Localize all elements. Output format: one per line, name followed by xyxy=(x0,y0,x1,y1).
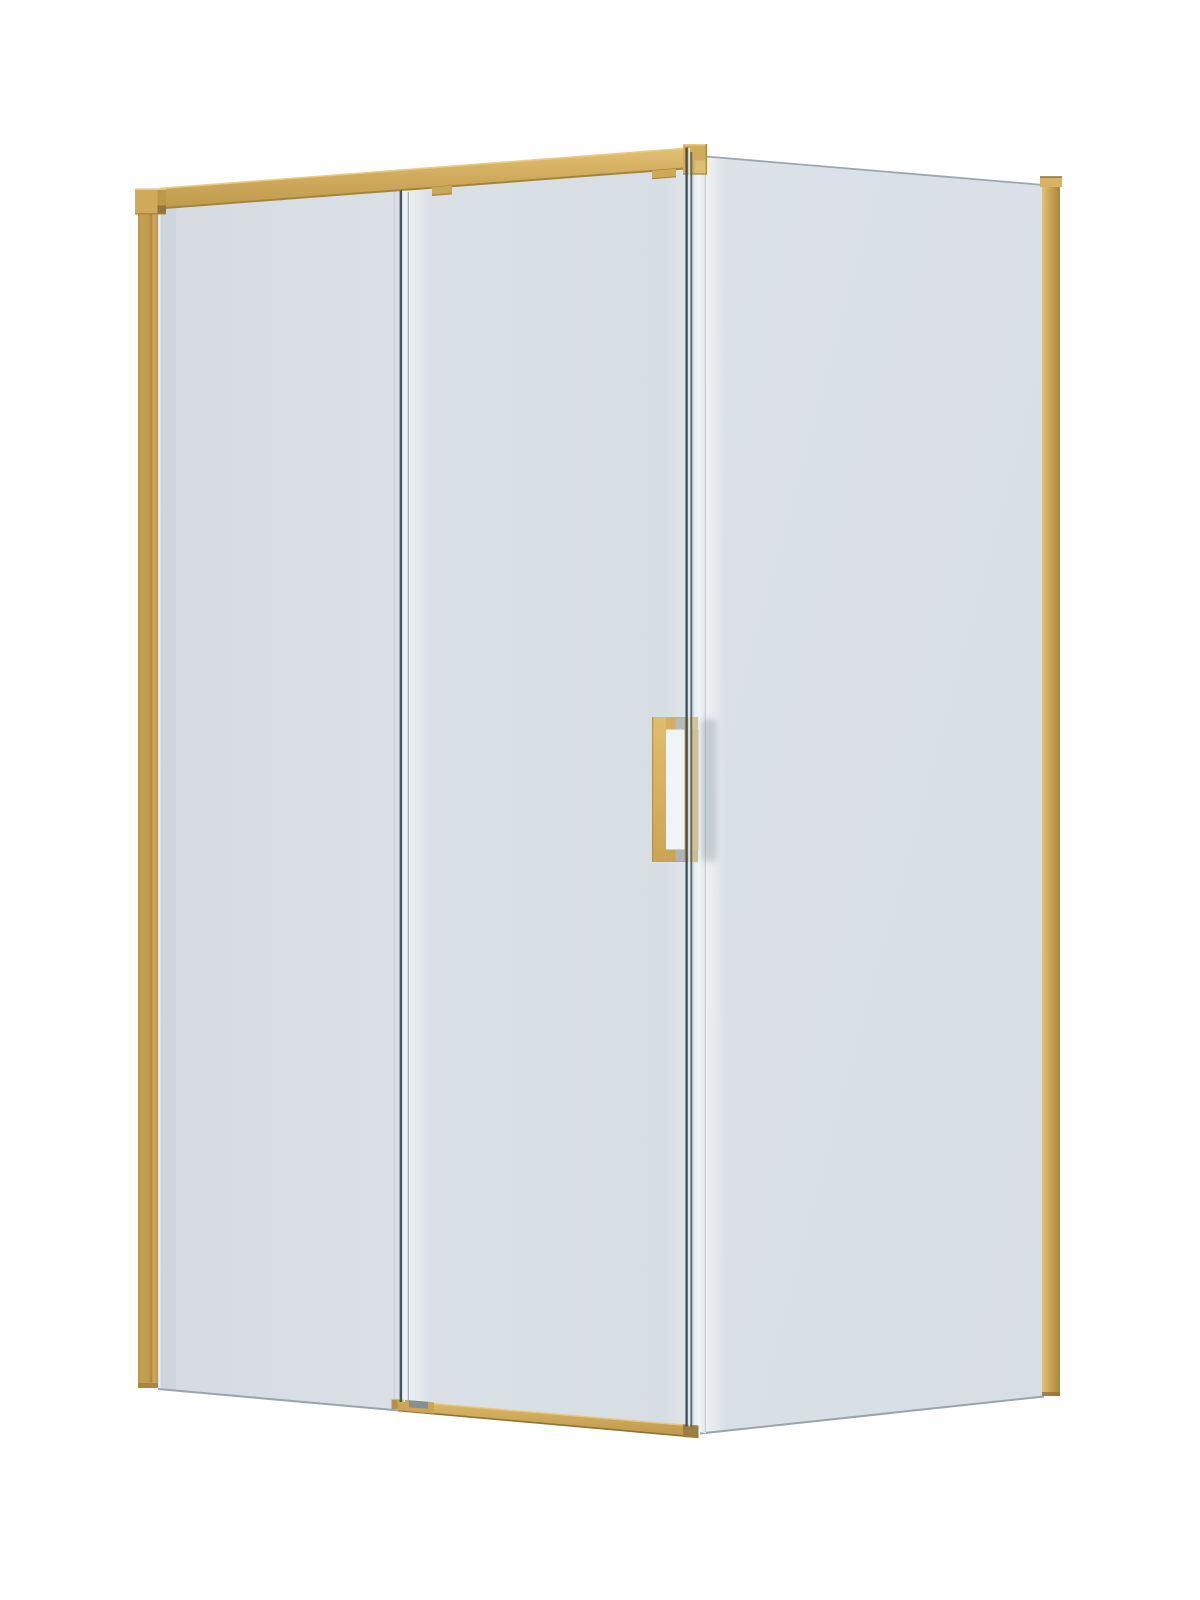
corner-post-cap xyxy=(1040,177,1062,188)
fixed-panel-glass xyxy=(158,190,400,1411)
wall-bracket-notch xyxy=(158,206,167,215)
fixed-front-panel xyxy=(158,190,400,1411)
shower-enclosure-render xyxy=(0,0,1200,1600)
left-wall-bracket xyxy=(135,189,166,215)
handle-shadow xyxy=(702,718,717,862)
corner-post-body xyxy=(1042,187,1060,1396)
handle-standoff-bottom xyxy=(676,850,685,862)
side-panel-glass xyxy=(700,156,1044,1434)
fixed-panel-inner-shade xyxy=(158,208,176,1391)
wall-profile-body xyxy=(138,206,158,1388)
corner-cap-step xyxy=(695,161,707,175)
handle-standoff-top xyxy=(676,718,685,729)
right-corner-post xyxy=(1040,177,1062,1397)
sliding-door-glass xyxy=(400,168,692,1426)
bottom-track-left-nub xyxy=(392,1400,399,1410)
wall-profile-bottom-shade xyxy=(138,1383,158,1388)
sliding-door xyxy=(400,168,692,1426)
left-wall-profile xyxy=(138,206,158,1388)
corner-post-bottom-shade xyxy=(1042,1392,1060,1396)
handle-cutout xyxy=(666,730,685,850)
side-return-panel xyxy=(700,156,1044,1434)
handle-grip-column xyxy=(652,717,666,862)
product-render-stage xyxy=(0,0,1200,1600)
